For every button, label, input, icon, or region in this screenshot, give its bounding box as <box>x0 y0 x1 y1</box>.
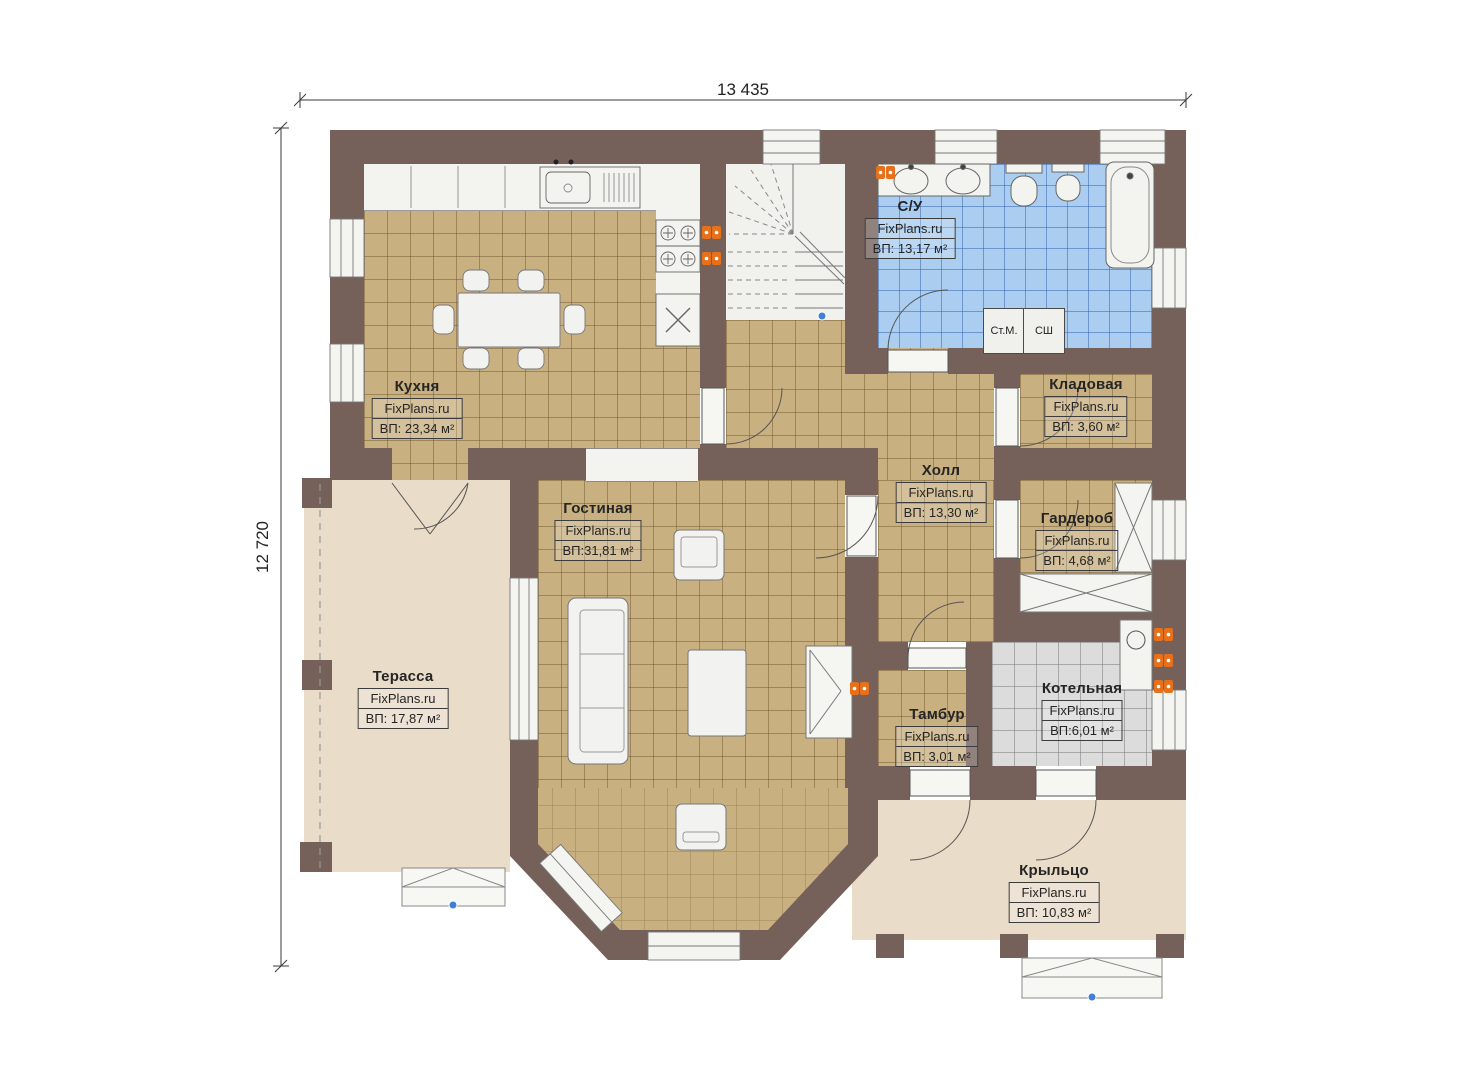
room-area-wardrobe: ВП: 4,68 м² <box>1036 551 1117 570</box>
window-right-boiler <box>1152 690 1186 750</box>
living-furniture <box>568 530 746 850</box>
watermark: FixPlans.ru <box>373 399 462 419</box>
sink-1 <box>894 168 928 194</box>
bidet <box>1052 164 1084 201</box>
kitchen-cabinet-x <box>656 294 700 346</box>
room-area-vestibule: ВП: 3,01 м² <box>896 747 977 766</box>
window-top-right <box>1100 130 1165 164</box>
watermark: FixPlans.ru <box>897 483 986 503</box>
room-name-terrace: Терасса <box>358 668 449 685</box>
watermark: FixPlans.ru <box>1045 397 1126 417</box>
room-area-boiler-room: ВП:6,01 м² <box>1042 721 1121 740</box>
room-label-boiler-room: Котельная FixPlans.ruВП:6,01 м² <box>1041 680 1122 741</box>
room-area-kitchen: ВП: 23,34 м² <box>373 419 462 438</box>
floor-plan: Ст.М. СШ <box>0 0 1474 1080</box>
watermark: FixPlans.ru <box>555 521 640 541</box>
terrace-steps <box>402 868 505 909</box>
window-bay-left <box>540 844 622 931</box>
watermark: FixPlans.ru <box>1010 883 1099 903</box>
porch-steps <box>1022 958 1162 1001</box>
door-front-entrance <box>910 770 970 860</box>
armchair-top <box>674 530 724 580</box>
boiler-unit <box>1120 620 1152 690</box>
armchair-bay <box>676 804 726 850</box>
dimension-height-label: 12 720 <box>253 521 273 573</box>
door-boiler-porch <box>1036 770 1096 860</box>
room-name-kitchen: Кухня <box>372 378 463 395</box>
watermark: FixPlans.ru <box>866 219 955 239</box>
room-label-vestibule: Тамбур FixPlans.ruВП: 3,01 м² <box>895 706 978 767</box>
room-name-vestibule: Тамбур <box>895 706 978 723</box>
room-label-storage: Кладовая FixPlans.ruВП: 3,60 м² <box>1044 376 1127 437</box>
room-label-hall: Холл FixPlans.ruВП: 13,30 м² <box>896 462 987 523</box>
boiler-markers <box>1154 628 1173 693</box>
doors <box>392 290 1096 860</box>
window-living-terrace <box>510 578 538 740</box>
stove-knobs-1 <box>702 226 721 239</box>
room-label-living-room: Гостиная FixPlans.ruВП:31,81 м² <box>554 500 641 561</box>
window-left-kitchen-1 <box>330 219 364 277</box>
bathtub <box>1106 162 1154 268</box>
door-vestibule-hall <box>908 602 966 668</box>
sofa <box>568 598 628 764</box>
window-bay-bottom <box>648 932 740 960</box>
dimension-line-left <box>273 122 289 972</box>
watermark: FixPlans.ru <box>896 727 977 747</box>
room-label-wardrobe: Гардероб FixPlans.ruВП: 4,68 м² <box>1035 510 1118 571</box>
door-hall-living <box>816 496 878 558</box>
dimension-width-label: 13 435 <box>717 80 769 100</box>
stove-knobs-2 <box>702 252 721 265</box>
room-name-hall: Холл <box>896 462 987 479</box>
door-kitchen-hall <box>702 388 782 444</box>
room-area-storage: ВП: 3,60 м² <box>1045 417 1126 436</box>
kitchen-stove <box>656 220 700 272</box>
room-name-living-room: Гостиная <box>554 500 641 517</box>
watermark: FixPlans.ru <box>1042 701 1121 721</box>
sink-2 <box>946 168 980 194</box>
window-top-bathroom <box>935 130 997 164</box>
staircase <box>728 164 845 320</box>
window-left-kitchen-2 <box>330 344 364 402</box>
stair-winder-lines <box>728 164 793 308</box>
room-name-porch: Крыльцо <box>1009 862 1100 879</box>
kitchen-fixtures <box>411 160 700 370</box>
coffee-table <box>688 650 746 736</box>
door-terrace <box>392 483 468 534</box>
room-label-porch: Крыльцо FixPlans.ruВП: 10,83 м² <box>1009 862 1100 923</box>
room-name-wardrobe: Гардероб <box>1035 510 1118 527</box>
stair-treads <box>793 164 845 308</box>
fireplace-marker <box>850 682 869 695</box>
dining-table <box>458 293 560 347</box>
room-area-terrace: ВП: 17,87 м² <box>359 709 448 728</box>
room-area-living-room: ВП:31,81 м² <box>555 541 640 560</box>
watermark: FixPlans.ru <box>359 689 448 709</box>
room-area-porch: ВП: 10,83 м² <box>1010 903 1099 922</box>
dining-set <box>433 270 585 369</box>
kitchen-sink <box>540 160 640 209</box>
watermark: FixPlans.ru <box>1036 531 1117 551</box>
window-top-stairs <box>763 130 820 164</box>
room-area-hall: ВП: 13,30 м² <box>897 503 986 522</box>
window-right-bathroom <box>1152 248 1186 308</box>
room-name-bathroom: С/У <box>865 198 956 215</box>
door-bathroom <box>888 290 948 372</box>
fireplace <box>806 646 852 738</box>
room-name-boiler-room: Котельная <box>1041 680 1122 697</box>
stair-marker-dot <box>818 312 826 320</box>
room-label-bathroom: С/У FixPlans.ruВП: 13,17 м² <box>865 198 956 259</box>
room-label-kitchen: Кухня FixPlans.ruВП: 23,34 м² <box>372 378 463 439</box>
toilet <box>1006 164 1042 206</box>
room-label-terrace: Терасса FixPlans.ruВП: 17,87 м² <box>358 668 449 729</box>
room-area-bathroom: ВП: 13,17 м² <box>866 239 955 258</box>
room-name-storage: Кладовая <box>1044 376 1127 393</box>
window-right-wardrobe <box>1152 500 1186 560</box>
plan-linework <box>0 0 1474 1080</box>
